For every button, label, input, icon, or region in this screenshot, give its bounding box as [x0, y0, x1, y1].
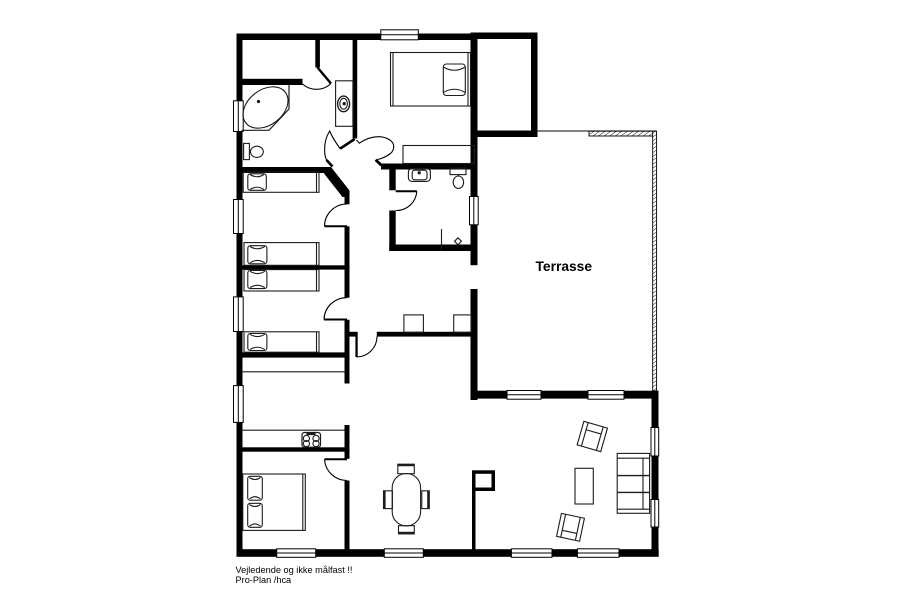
svg-text:Terrasse: Terrasse — [536, 259, 593, 274]
svg-text:Pro-Plan /hca: Pro-Plan /hca — [236, 575, 293, 585]
svg-text:Vejledende og ikke målfast !!: Vejledende og ikke målfast !! — [236, 565, 353, 575]
